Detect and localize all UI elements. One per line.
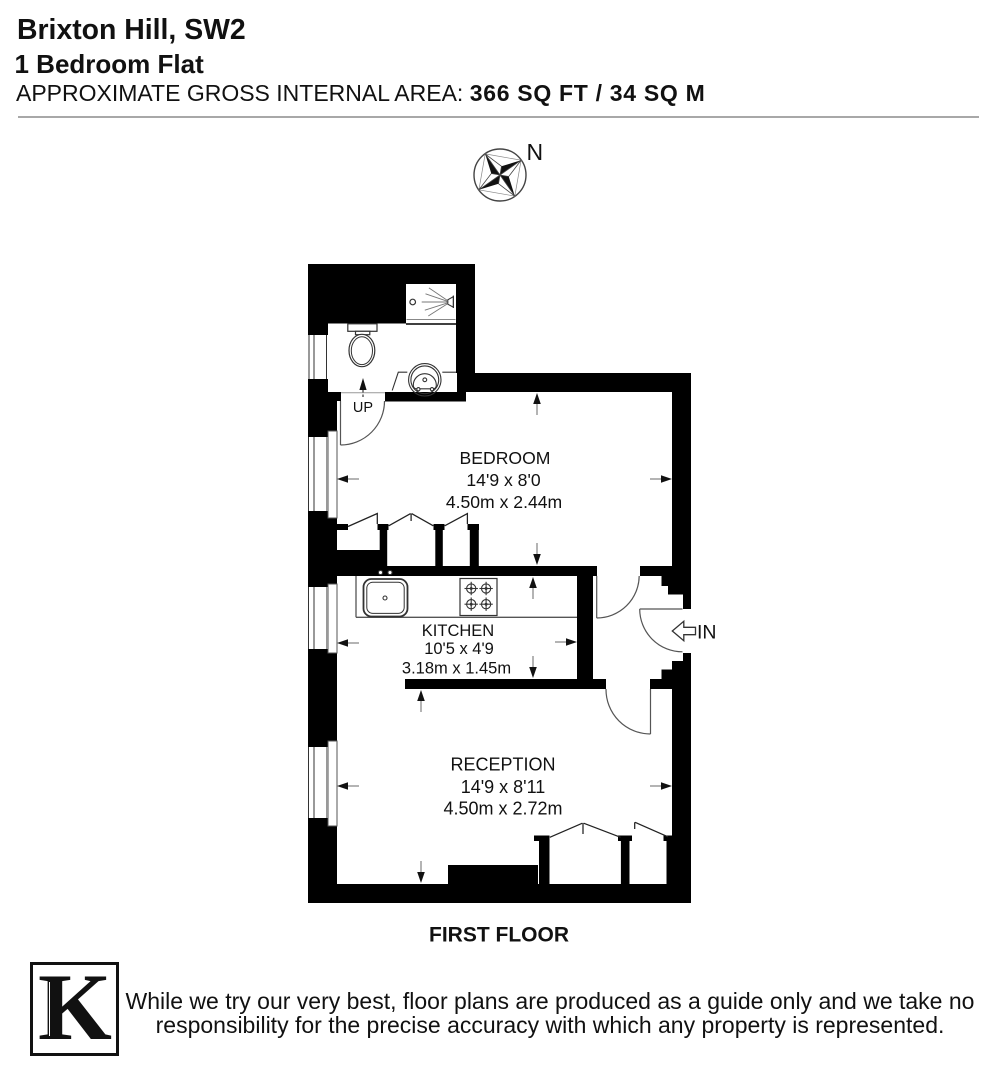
svg-text:RECEPTION: RECEPTION <box>450 755 555 775</box>
svg-text:N: N <box>527 139 544 165</box>
svg-text:10'5 x 4'9: 10'5 x 4'9 <box>424 640 494 658</box>
svg-text:FIRST FLOOR: FIRST FLOOR <box>429 924 569 947</box>
svg-text:BEDROOM: BEDROOM <box>460 448 551 468</box>
svg-text:14'9 x 8'11: 14'9 x 8'11 <box>461 777 546 797</box>
svg-text:4.50m x 2.72m: 4.50m x 2.72m <box>443 799 562 819</box>
svg-text:KITCHEN: KITCHEN <box>422 622 494 640</box>
svg-text:4.50m x 2.44m: 4.50m x 2.44m <box>446 492 562 512</box>
svg-text:3.18m x 1.45m: 3.18m x 1.45m <box>402 660 511 678</box>
svg-text:IN: IN <box>697 622 717 644</box>
svg-text:UP: UP <box>353 400 373 416</box>
svg-text:14'9 x 8'0: 14'9 x 8'0 <box>466 470 540 490</box>
